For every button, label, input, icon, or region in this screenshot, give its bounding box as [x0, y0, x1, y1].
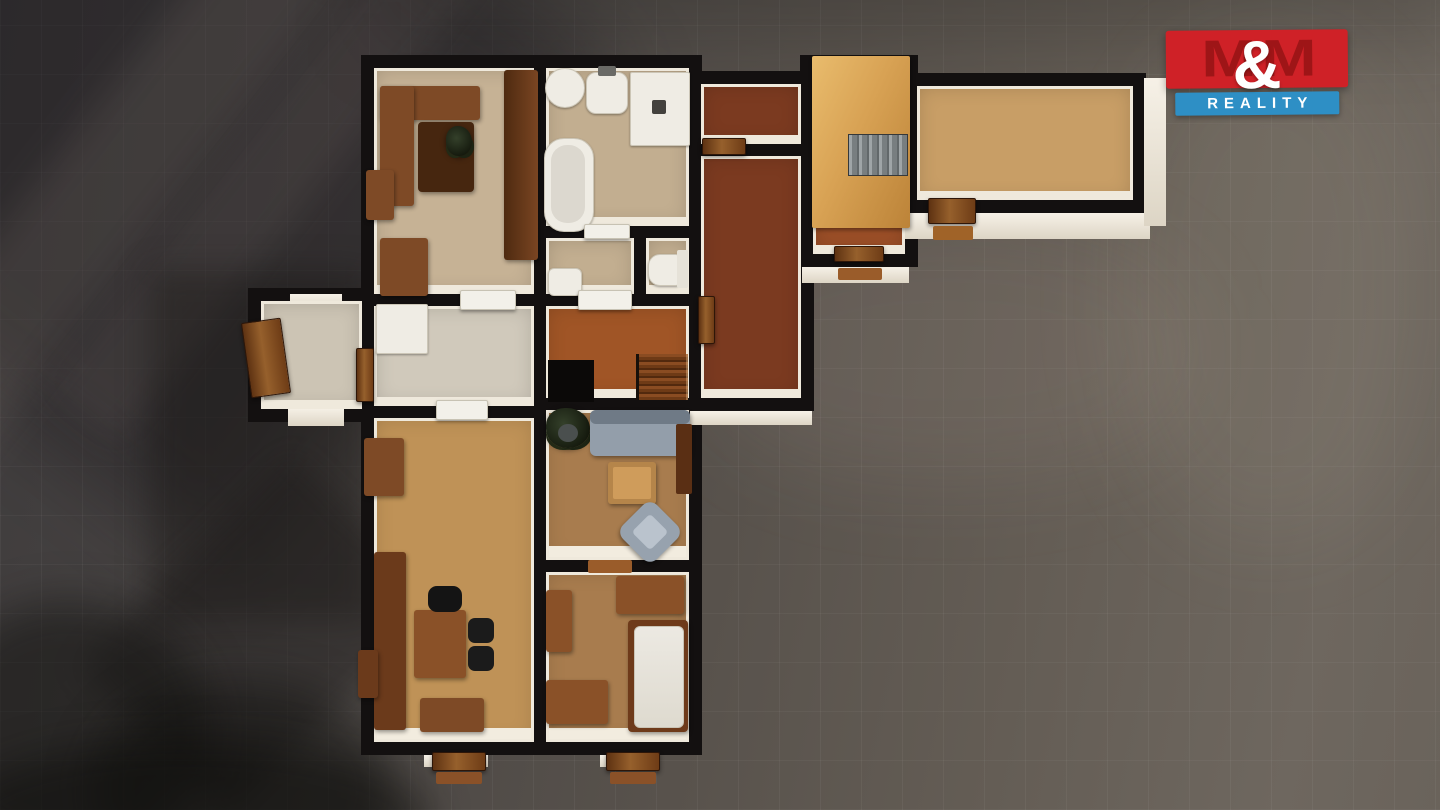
laundry-door: [584, 224, 630, 239]
study-cabinet-protruding: [358, 650, 378, 698]
logo-ampersand: &: [1232, 31, 1282, 99]
bidet-faucet: [598, 66, 616, 76]
stairs-down: [636, 354, 688, 400]
hall-door-bottom: [436, 400, 488, 420]
logo-mm-box: M&M: [1166, 29, 1348, 89]
stair-room-door: [834, 246, 884, 262]
pedestal-sink: [545, 68, 585, 108]
bidet-toilet: [586, 72, 628, 114]
shower-drain: [652, 100, 666, 114]
kitchen-tall-wardrobe: [504, 70, 538, 260]
living-plant-pot: [558, 424, 578, 442]
living-cabinet-right: [676, 424, 692, 494]
study-chair-2: [468, 646, 494, 671]
room-corridor: [701, 156, 801, 398]
attic-door-step: [933, 226, 973, 240]
stairhall-door-top: [578, 290, 632, 310]
bedroom-desk: [546, 680, 608, 724]
stair-steps: [848, 134, 908, 176]
room-attic-room: [917, 86, 1133, 200]
study-door: [432, 752, 486, 771]
bedroom-dresser: [546, 590, 572, 652]
attic-door: [928, 198, 976, 224]
stairwell-void: [548, 360, 594, 402]
wc-toilet: [648, 254, 680, 286]
hall-cabinet: [376, 304, 428, 354]
floorplan: [0, 0, 1440, 810]
corridor-door-left: [698, 296, 715, 344]
study-low-cabinet: [420, 698, 484, 732]
wall-face-corridor-south: [690, 411, 812, 425]
table-plant: [446, 126, 472, 156]
hall-door-top: [460, 290, 516, 310]
study-sideboard: [364, 438, 404, 496]
wc-cistern: [677, 250, 688, 288]
laundry-sink: [548, 268, 582, 296]
mm-reality-logo: M&M REALITY: [1166, 29, 1349, 116]
coffee-table-top: [613, 467, 651, 499]
study-office-chair: [428, 586, 462, 612]
bedroom-wardrobe: [616, 576, 684, 614]
bedroom-shelf: [588, 560, 632, 573]
floorplan-render-scene: M&M REALITY: [0, 0, 1440, 810]
bathtub-inner: [551, 145, 585, 223]
wall-face-vestibule-south: [288, 408, 344, 426]
study-chair-1: [468, 618, 494, 643]
bedroom-door: [606, 752, 660, 771]
kitchen-cabinet-left: [366, 170, 394, 220]
living-sofa-back: [590, 410, 690, 424]
kitchen-bench-lower: [380, 238, 428, 296]
study-door-step: [436, 772, 482, 784]
study-desk: [414, 610, 466, 678]
bed-mattress: [634, 626, 684, 728]
room-pantry: [701, 84, 801, 144]
vestibule-inner-door: [356, 348, 374, 402]
bedroom-door-step: [610, 772, 656, 784]
corridor-door-upper: [702, 138, 746, 155]
study-wardrobe: [374, 552, 406, 730]
stair-door-step: [838, 268, 882, 280]
wall-face-attic-east: [1144, 78, 1166, 226]
